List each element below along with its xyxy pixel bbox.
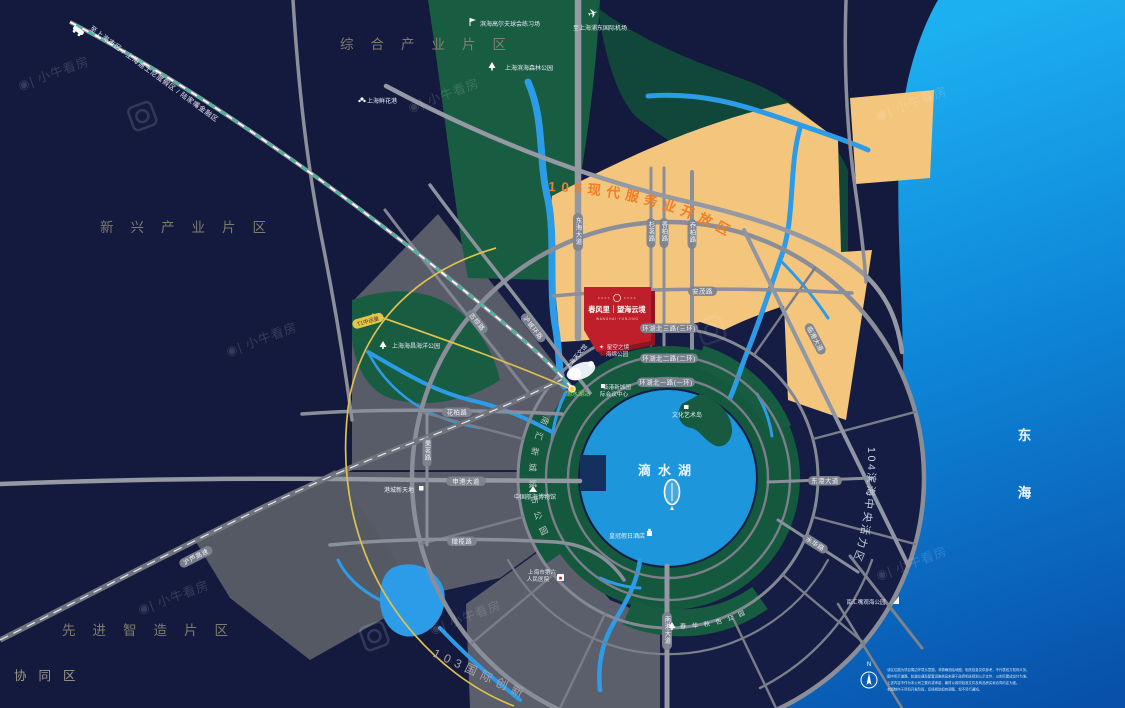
svg-text:环湖北二路(二环): 环湖北二路(二环) xyxy=(642,354,696,363)
station-label: 滴水湖站 xyxy=(566,390,590,398)
svg-text:橄榄路: 橄榄路 xyxy=(452,537,473,546)
road-pill-ring2: 环湖北二路(二环) xyxy=(640,354,698,364)
road-pill-shanming: 杉茗路 xyxy=(647,218,656,248)
hospital-label-1: 上海市第六 xyxy=(528,568,556,576)
sponge-park-icon: ✦ xyxy=(599,344,604,351)
airport-label: 至上海浦东国际机场 xyxy=(573,24,627,32)
art-island-icon xyxy=(684,405,689,409)
svg-text:果茗路: 果茗路 xyxy=(424,440,431,462)
svg-text:香柏路: 香柏路 xyxy=(661,220,668,243)
road-pill-xiangbai: 香柏路 xyxy=(660,218,669,248)
hotel-label: 皇冠假日酒店 xyxy=(609,532,645,540)
conference-label-2: 际会议中心 xyxy=(600,390,628,398)
gangcheng-label: 港城新天地 xyxy=(384,486,414,494)
zone-103-label-2: 协同区 xyxy=(14,668,88,683)
svg-text:东海大道: 东海大道 xyxy=(575,216,582,246)
zone-advanced-label: 先进智造片区 xyxy=(62,623,245,638)
disclaimer-line-3: ·上述内容不作为本公司之要约或承诺，最终以政府批准文件及商品房买卖合同约定为准。 xyxy=(886,680,1019,685)
dishui-lake xyxy=(580,390,756,566)
sponge-park-label-2: 海绵公园 xyxy=(606,350,629,358)
road-pill-shengang-avenue: 申港大道 xyxy=(446,477,486,487)
svg-text:安茂路: 安茂路 xyxy=(692,287,713,296)
disclaimer-line-4: ·本图制作于项目开发阶段，后续规划如有调整，恕不另行通知。 xyxy=(886,687,982,692)
svg-text:花柏路: 花柏路 xyxy=(447,408,468,417)
hospital-label-2: 人民医院 xyxy=(527,575,550,583)
disclaimer-line-2: ·图中所示道路、轨道交通及配套设施信息来源于政府相关规划公示文件，以实际建成交付… xyxy=(886,674,1030,679)
zone-comprehensive-label: 综合产业片区 xyxy=(340,37,523,52)
svg-text:南港大道: 南港大道 xyxy=(664,615,671,645)
road-pill-ring3: 环湖北三路(三环) xyxy=(640,324,698,334)
project-name: 春风里｜望海云境 xyxy=(587,305,646,314)
nanhuizui-park-label: 南汇嘴观海公园 xyxy=(846,598,886,606)
east-sea-label: 东海 xyxy=(1016,427,1032,543)
location-map: 春风里｜望海云境 W A N G H A I · Y U N J I N G 东… xyxy=(0,0,1125,708)
road-pill-ganlan: 橄榄路 xyxy=(447,537,477,547)
road-pill-ring1: 环湖北一路(一环) xyxy=(637,378,695,388)
lake-label: 滴水湖 xyxy=(638,463,698,478)
project-subtitle: W A N G H A I · Y U N J I N G xyxy=(596,317,638,321)
road-pill-huabai: 花柏路 xyxy=(442,408,472,418)
svg-text:杉茗路: 杉茗路 xyxy=(648,220,655,243)
flower-port-label: 上海鲜花港 xyxy=(367,97,397,105)
road-pill-guoming: 果茗路 xyxy=(423,437,432,467)
golf-label: 滨海高尔夫球会练习场 xyxy=(480,20,540,28)
conference-label-1: 临港新城国 xyxy=(603,383,631,391)
gangcheng-icon xyxy=(419,486,424,491)
map-canvas: 春风里｜望海云境 W A N G H A I · Y U N J I N G 东… xyxy=(0,0,1125,708)
svg-text:申港大道: 申港大道 xyxy=(452,477,480,486)
svg-text:环湖北三路(三环): 环湖北三路(三环) xyxy=(642,324,696,333)
sponge-park-label-1: 星空之境 xyxy=(607,343,630,351)
road-pill-donghai-avenue: 东海大道 xyxy=(573,213,583,251)
road-pill-nangang-avenue: 南港大道 xyxy=(662,612,672,650)
svg-text:东港大道: 东港大道 xyxy=(811,476,839,485)
hospital-cross-icon xyxy=(557,574,564,581)
disclaimer-line-1: ·该区位图为项目周边环境示意图，非精确测绘地图，相关信息仅供参考，不代表双方权利… xyxy=(886,667,1030,672)
road-pill-anmao: 安茂路 xyxy=(688,287,717,297)
ocean-park-label: 上海海昌海洋公园 xyxy=(392,342,440,350)
svg-text:环湖北一路(一环): 环湖北一路(一环) xyxy=(639,378,693,387)
zone-emerging-label: 新兴产业片区 xyxy=(100,220,283,235)
art-island-label: 文化艺术岛 xyxy=(672,411,702,419)
svg-text:乔柏路: 乔柏路 xyxy=(689,222,696,244)
marina-basin xyxy=(580,455,606,491)
compass-n-label: N xyxy=(867,662,871,668)
road-pill-donggang-avenue: 东港大道 xyxy=(808,476,842,486)
forest-park-label: 上海滨海森林公园 xyxy=(505,64,553,72)
